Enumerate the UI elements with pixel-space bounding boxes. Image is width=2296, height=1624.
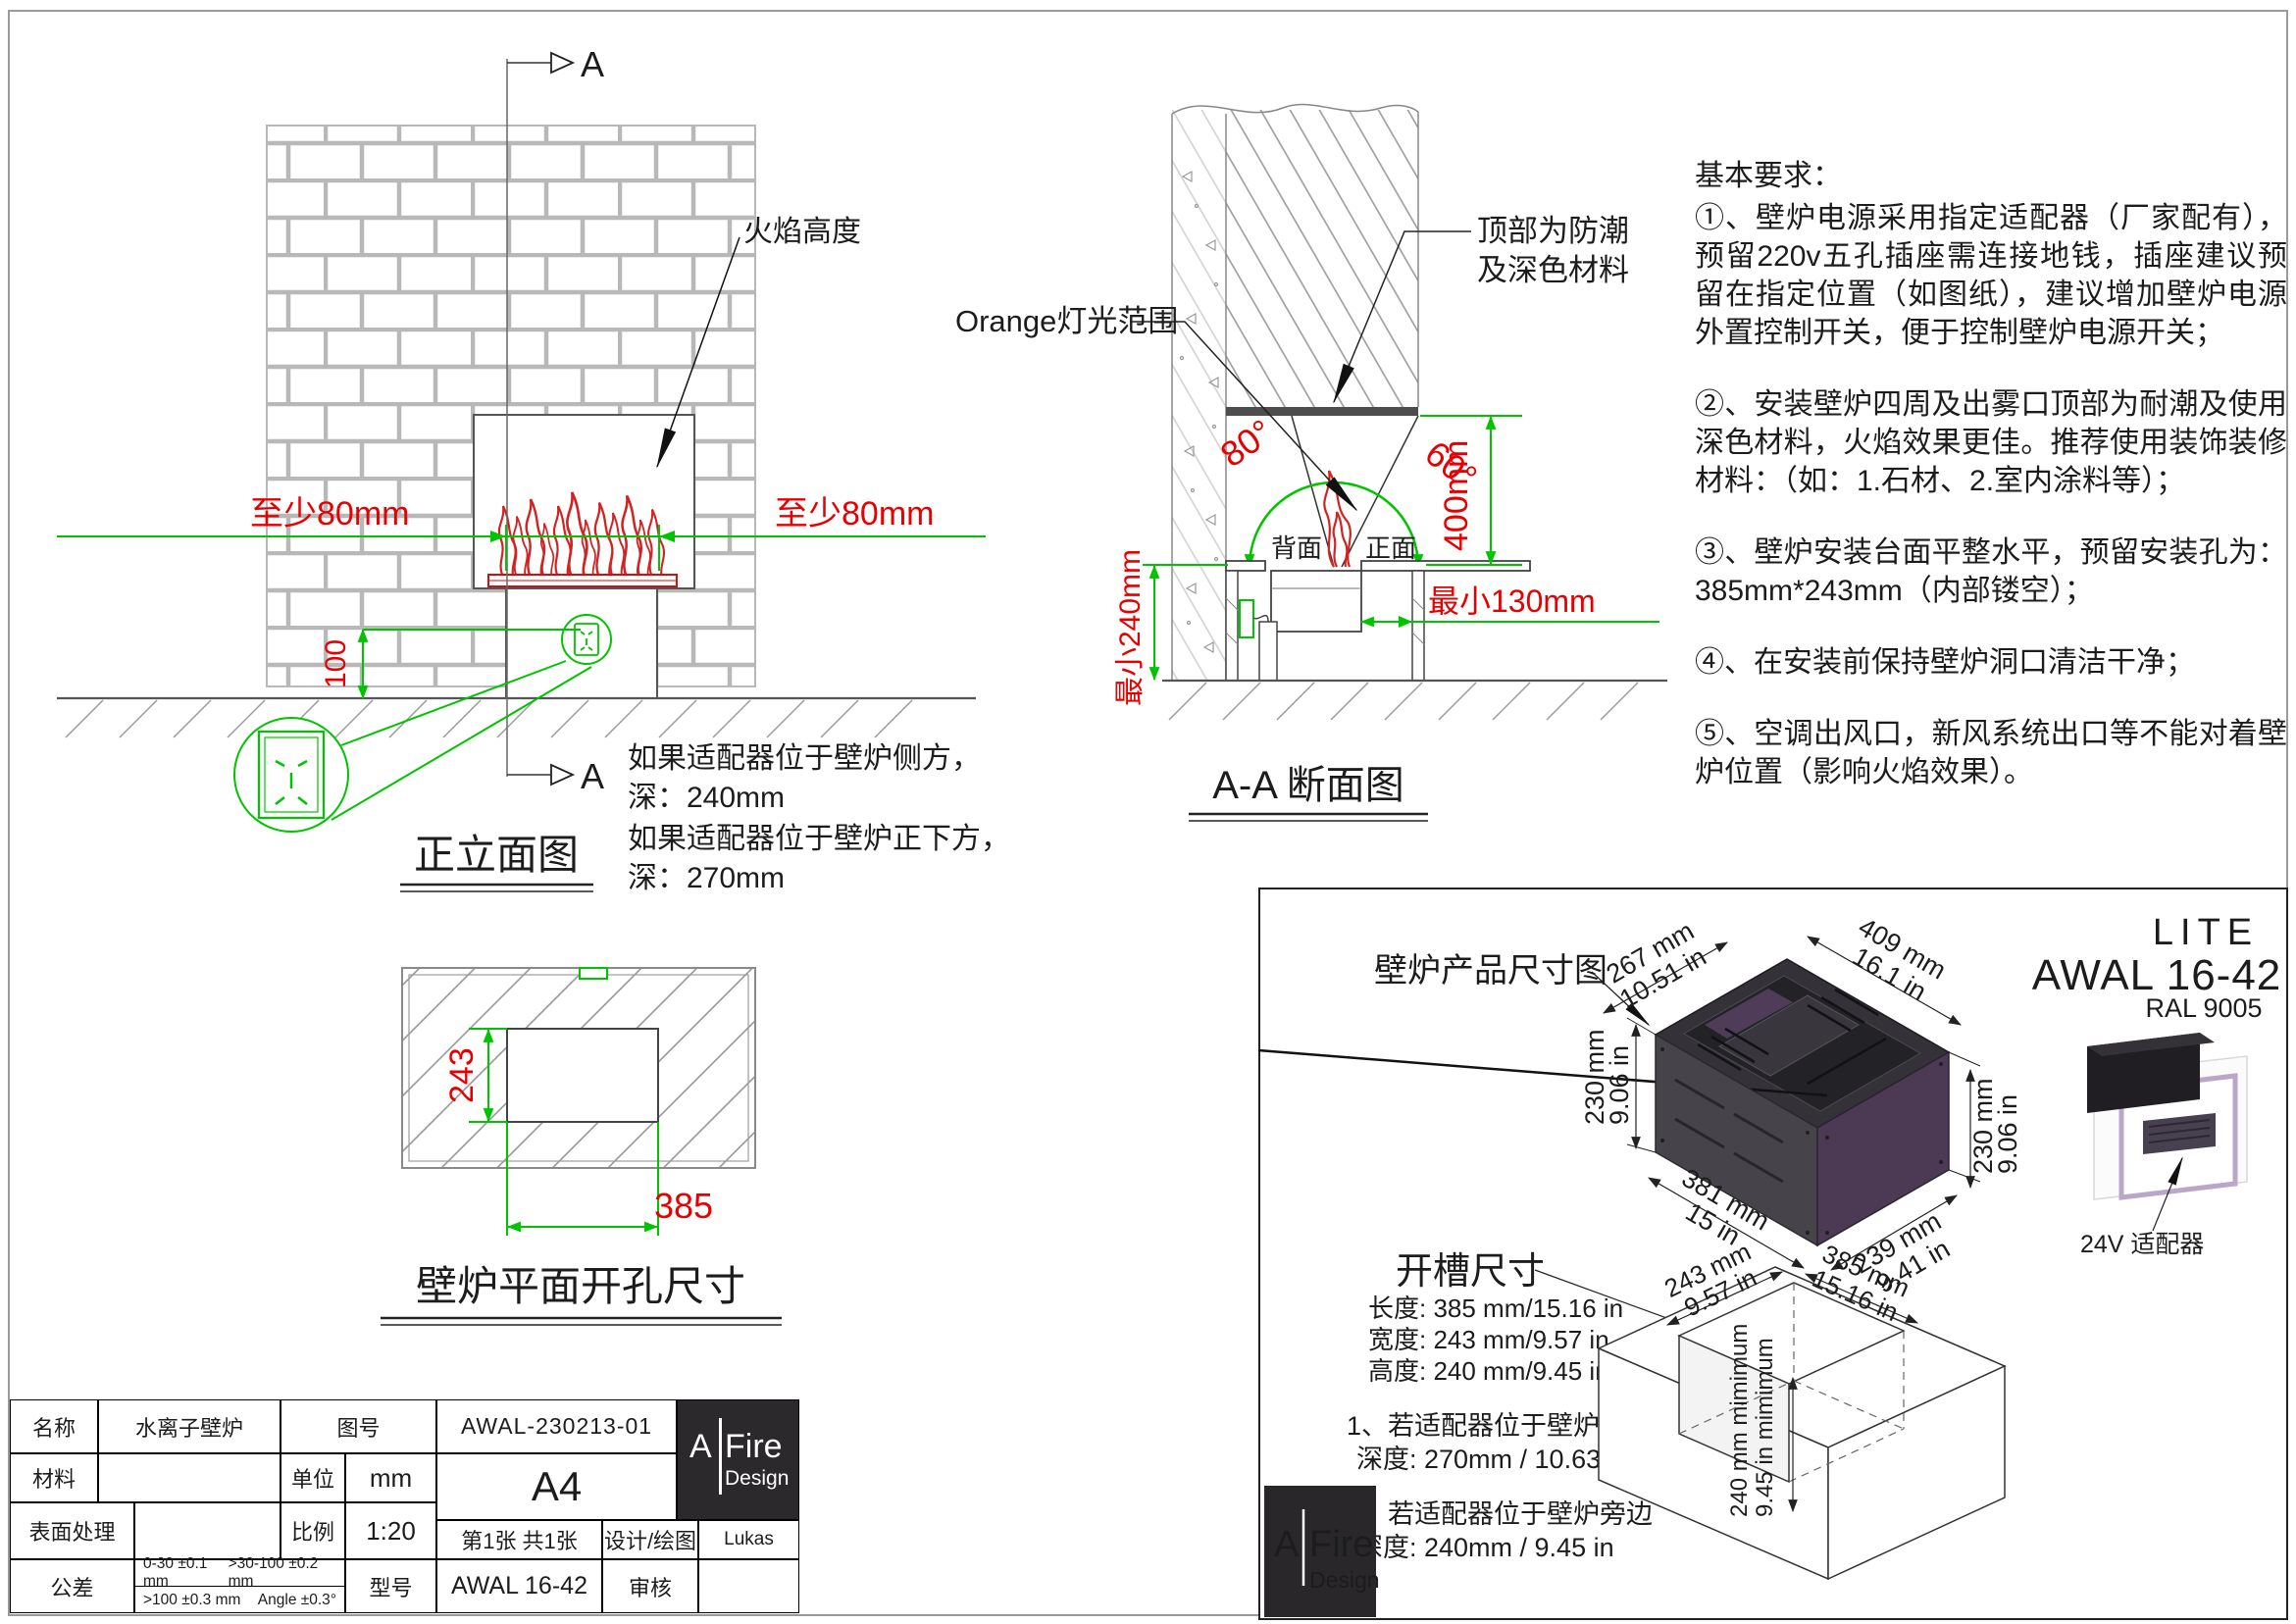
svg-text:Fire: Fire	[1309, 1524, 1373, 1565]
model-value-cell: AWAL 16-42	[436, 1559, 602, 1613]
svg-text:A-A 断面图: A-A 断面图	[1212, 764, 1404, 807]
requirement-item-5: ⑤、空调出风口，新风系统出口等不能对着壁炉位置（影响火焰效果）。	[1695, 715, 2287, 791]
front-face-label: 正面	[1365, 533, 1416, 563]
dim-min-130: 最小130mm	[1361, 584, 1659, 628]
product-panel: 壁炉产品尺寸图 267 mm 10.51 in 409	[1258, 888, 2288, 1620]
adapter-notch	[580, 968, 607, 979]
adapter-cable	[1253, 616, 1268, 622]
dim-100-label: 100	[320, 639, 352, 688]
scale-label-cell: 比例	[281, 1502, 345, 1559]
plan-view-title: 壁炉平面开孔尺寸	[381, 1263, 782, 1325]
surface-value-cell	[134, 1502, 281, 1559]
surface-label-cell: 表面处理	[10, 1502, 134, 1559]
product-dims-label: 壁炉产品尺寸图	[1374, 952, 1607, 990]
svg-text:深度: 240mm / 9.45 in: 深度: 240mm / 9.45 in	[1356, 1533, 1614, 1562]
material-value-cell	[98, 1453, 281, 1502]
svg-text:9.06 in: 9.06 in	[1605, 1045, 1634, 1125]
requirement-item-2: ②、安装壁炉四周及出雾口顶部为耐潮及使用深色材料，火焰效果更佳。推荐使用装饰装修…	[1695, 385, 2287, 500]
requirements-title: 基本要求：	[1695, 157, 2287, 195]
section-marker-arrow-bottom	[551, 765, 573, 785]
brand-logo-titleblock: A Fire Design	[677, 1399, 799, 1520]
burner-strip	[488, 575, 677, 586]
slot-size-title: 开槽尺寸	[1396, 1251, 1545, 1293]
svg-text:最小130mm: 最小130mm	[1428, 584, 1596, 619]
ground-line	[57, 698, 976, 737]
svg-text:9.45 in mimimum: 9.45 in mimimum	[1752, 1338, 1778, 1517]
front-elevation-view: A A 100 至少80mm 至少80mm	[29, 29, 1000, 941]
svg-text:最小240mm: 最小240mm	[1114, 549, 1147, 706]
section-marker-arrow-top	[551, 53, 573, 73]
section-socket	[1240, 600, 1253, 637]
plan-view: 243 385 壁炉平面开孔尺寸	[363, 941, 814, 1334]
requirement-item-3: ③、壁炉安装台面平整水平，预留安装孔为：385mm*243mm（内部镂空）；	[1695, 533, 2287, 610]
requirements-notes: 基本要求： ①、壁炉电源采用指定适配器（厂家配有），预留220v五孔插座需连接地…	[1695, 157, 2287, 825]
ral-label: RAL 9005	[2145, 993, 2262, 1023]
svg-text:深：240mm: 深：240mm	[628, 782, 785, 814]
min-80-left-label: 至少80mm	[250, 495, 409, 533]
slot-specs: 长度: 385 mm/15.16 in 宽度: 243 mm/9.57 in 高…	[1368, 1294, 1623, 1386]
svg-text:及深色材料: 及深色材料	[1477, 253, 1629, 287]
designer-label-cell: 设计/绘图	[602, 1520, 698, 1559]
svg-text:长度: 385 mm/15.16 in: 长度: 385 mm/15.16 in	[1368, 1294, 1623, 1323]
material-label-cell: 材料	[10, 1453, 98, 1502]
svg-text:深：270mm: 深：270mm	[628, 862, 785, 894]
checker-label-cell: 审核	[602, 1559, 698, 1613]
tolerance-2: >30-100 ±0.2 mm	[229, 1555, 336, 1591]
svg-text:壁炉平面开孔尺寸: 壁炉平面开孔尺寸	[416, 1263, 745, 1309]
adapter-unit	[1259, 622, 1277, 681]
socket-detail-icon	[259, 732, 324, 818]
svg-text:Orange灯光范围: Orange灯光范围	[955, 304, 1178, 338]
svg-text:高度: 240 mm/9.45 in: 高度: 240 mm/9.45 in	[1368, 1356, 1609, 1386]
svg-text:243: 243	[443, 1047, 481, 1103]
svg-text:240 mm mimimum: 240 mm mimimum	[1726, 1324, 1753, 1517]
svg-text:正立面图: 正立面图	[414, 832, 579, 878]
unit-label-cell: 单位	[281, 1453, 345, 1502]
tolerance-1: 0-30 ±0.1 mm	[143, 1555, 229, 1591]
tolerance-4: Angle ±0.3°	[258, 1592, 336, 1609]
model-label-cell: 型号	[345, 1559, 436, 1613]
base-cabinet	[506, 588, 657, 698]
section-flame	[1324, 471, 1351, 567]
tolerance-label-cell: 公差	[10, 1559, 134, 1613]
name-value-cell: 水离子壁炉	[98, 1399, 281, 1453]
section-view: 80° 60° 背面 正面 400mm	[922, 59, 1677, 843]
fireplace-unit	[1271, 571, 1361, 632]
requirement-item-4: ④、在安装前保持壁炉洞口清洁干净；	[1695, 643, 2287, 682]
flame-height-label: 火焰高度	[743, 216, 861, 248]
drawing-no-label-cell: 图号	[281, 1399, 436, 1453]
designer-value-cell: Lukas	[698, 1520, 799, 1559]
svg-text:2、若适配器位于壁炉旁边: 2、若适配器位于壁炉旁边	[1347, 1499, 1653, 1529]
name-label-cell: 名称	[10, 1399, 98, 1453]
tolerance-3: >100 ±0.3 mm	[143, 1592, 240, 1609]
brand-logo-panel: A Fire Design	[1264, 1486, 1380, 1617]
title-block: 名称 水离子壁炉 图号 AWAL-230213-01 A Fire Design…	[10, 1399, 800, 1614]
tolerance-values-cell: 0-30 ±0.1 mm >30-100 ±0.2 mm >100 ±0.3 m…	[134, 1559, 345, 1613]
svg-text:A: A	[1274, 1524, 1300, 1565]
svg-text:深度: 270mm / 10.63 in: 深度: 270mm / 10.63 in	[1356, 1445, 1629, 1474]
model-lite-label: LITE	[2153, 912, 2259, 953]
drawing-sheet: A A 100 至少80mm 至少80mm	[0, 0, 2296, 1624]
dim-400mm: 400mm	[1420, 416, 1522, 565]
requirement-item-1: ①、壁炉电源采用指定适配器（厂家配有），预留220v五孔插座需连接地钱，插座建议…	[1695, 199, 2287, 352]
svg-text:400mm: 400mm	[1438, 440, 1475, 551]
section-marker-label-top: A	[581, 44, 604, 84]
svg-text:Design: Design	[1309, 1567, 1380, 1593]
back-face-label: 背面	[1271, 533, 1322, 563]
section-view-title: A-A 断面图	[1189, 764, 1428, 821]
drawing-no-value-cell: AWAL-230213-01	[436, 1399, 677, 1453]
svg-text:385: 385	[654, 1186, 713, 1226]
checker-value-cell	[698, 1559, 799, 1613]
svg-text:9.06 in: 9.06 in	[1993, 1094, 2022, 1174]
front-view-title: 正立面图	[400, 832, 593, 891]
adapter-24v-label: 24V 适配器	[2080, 1231, 2204, 1258]
svg-text:宽度: 243 mm/9.57 in: 宽度: 243 mm/9.57 in	[1368, 1325, 1609, 1354]
sheet-info-cell: 第1张 共1张	[436, 1520, 602, 1559]
scale-value-cell: 1:20	[345, 1502, 436, 1559]
model-code-label: AWAL 16-42	[2032, 951, 2282, 999]
section-ground	[1162, 681, 1667, 720]
section-marker-label-bottom: A	[581, 756, 604, 796]
paper-size-cell: A4	[436, 1453, 677, 1520]
opening-cutout	[507, 1029, 658, 1122]
unit-value-cell: mm	[345, 1453, 436, 1502]
min-80-right-label: 至少80mm	[775, 495, 934, 533]
svg-text:顶部为防潮: 顶部为防潮	[1477, 214, 1629, 248]
